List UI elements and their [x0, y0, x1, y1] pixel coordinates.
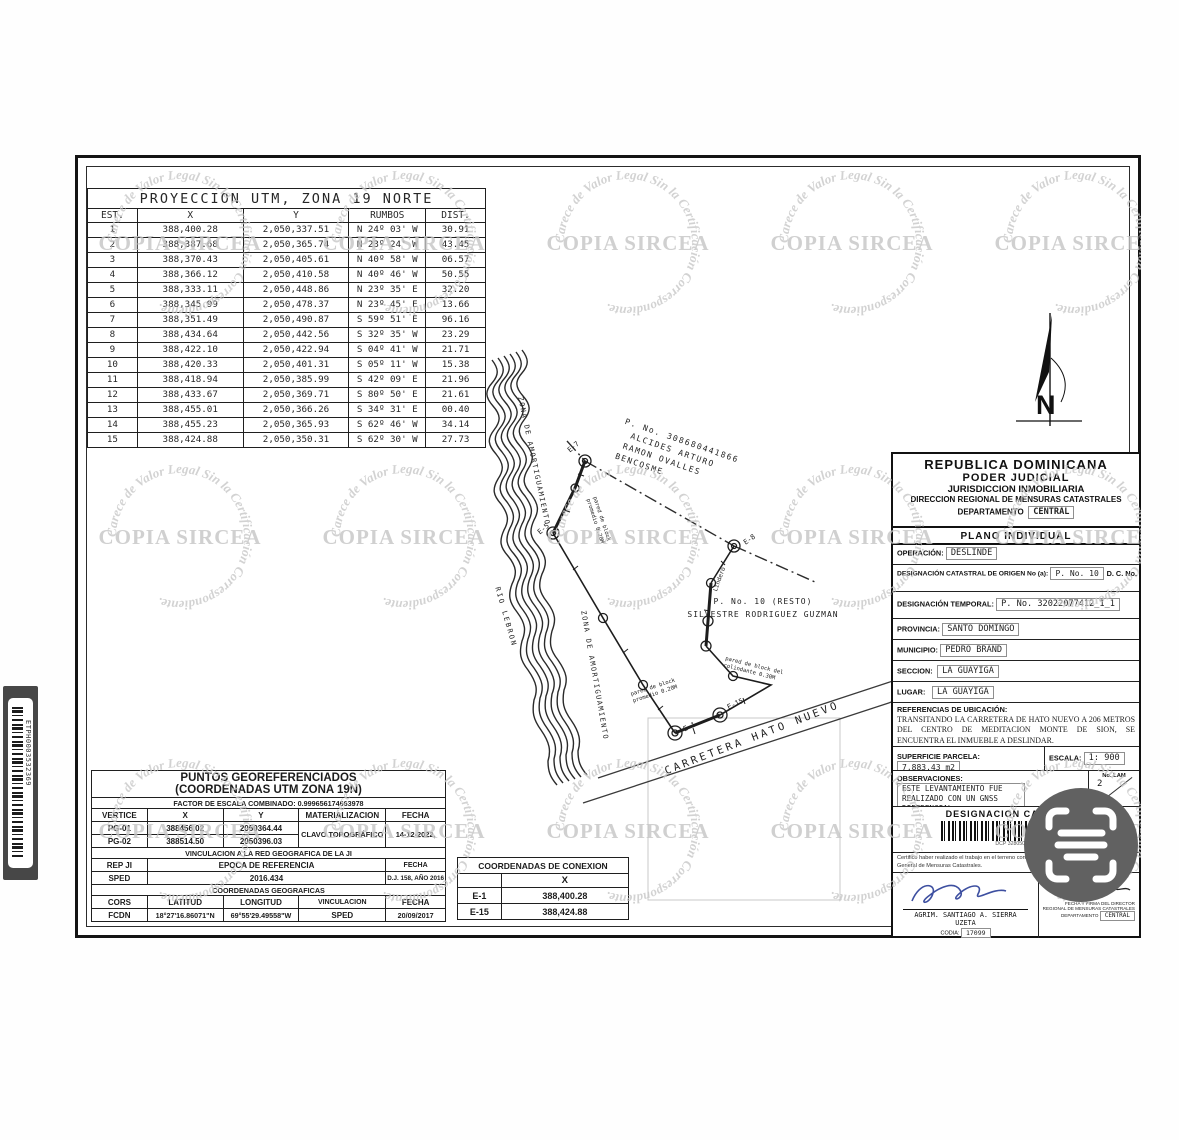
table-row: 15388,424.882,050,350.31S 62º 30' W27.73	[88, 433, 486, 448]
table-cell: 388,422.10	[137, 343, 243, 358]
georef-table: PUNTOS GEOREFERENCIADOS(COORDENADAS UTM …	[91, 770, 446, 922]
field-seccion: SECCION: LA GUAYIGA	[893, 661, 1139, 682]
panel-header: REPUBLICA DOMINICANA PODER JUDICIAL JURI…	[893, 454, 1139, 528]
table-row: 4388,366.122,050,410.58N 40º 46' W50.55	[88, 268, 486, 283]
georef-header: VERTICEX YMATERIALIZACION FECHA	[92, 809, 446, 822]
table-cell: 7	[88, 313, 138, 328]
georef-cors-header: CORSLATITUD LONGITUDVINCULACION FECHA	[92, 896, 446, 909]
georef-geo-title: COORDENADAS GEOGRAFICAS	[92, 885, 446, 896]
table-cell: 388,400.28	[501, 888, 628, 904]
table-cell: 2	[88, 238, 138, 253]
plan-sheet: N P. No. 308680441866 ALCIDES ARTURO RAM…	[75, 155, 1141, 938]
table-cell: N 23º 24' W	[349, 238, 426, 253]
table-cell: 388,387.68	[137, 238, 243, 253]
table-cell: 06.57	[426, 253, 486, 268]
table-cell: 2,050,385.99	[243, 373, 349, 388]
table-row: 6388,345.992,050,478.37N 23º 45' E13.66	[88, 298, 486, 313]
table-cell: 2,050,365.93	[243, 418, 349, 433]
conexion-table: COORDENADAS DE CONEXION X E-1388,400.28E…	[457, 857, 629, 920]
georef-row-pg01: PG-01388456.02 2050364.44 CLAVO TOPOGRÁF…	[92, 822, 446, 835]
table-cell: 5	[88, 283, 138, 298]
table-cell: 23.29	[426, 328, 486, 343]
utm-table: PROYECCION UTM, ZONA 19 NORTE EST.X YRUM…	[87, 188, 486, 448]
conexion-title: COORDENADAS DE CONEXION	[458, 858, 629, 874]
scanned-plan-page: ETPH0003532369	[0, 0, 1179, 1140]
table-cell: 21.96	[426, 373, 486, 388]
conexion-header: X	[458, 874, 629, 888]
table-cell: 388,351.49	[137, 313, 243, 328]
table-cell: N 40º 46' W	[349, 268, 426, 283]
table-cell: S 05º 11' W	[349, 358, 426, 373]
table-cell: 30.91	[426, 223, 486, 238]
field-municipio: MUNICIPIO: PEDRO BRAND	[893, 640, 1139, 661]
table-cell: 4	[88, 268, 138, 283]
table-cell: 2,050,365.74	[243, 238, 349, 253]
table-cell: N 23º 45' E	[349, 298, 426, 313]
georef-cors-row: FCDN 18°27'16.86071"N 69°55'29.49558"W S…	[92, 909, 446, 922]
table-cell: 2,050,401.31	[243, 358, 349, 373]
table-cell: N 23º 35' E	[349, 283, 426, 298]
table-cell: E-15	[458, 904, 502, 920]
north-letter: N	[1036, 390, 1056, 420]
table-cell: 21.71	[426, 343, 486, 358]
table-cell: 388,400.28	[137, 223, 243, 238]
field-superficie-escala: SUPERFICIE PARCELA: 7,883.43 m2 ESCALA: …	[893, 747, 1139, 771]
departamento-value: CENTRAL	[1028, 506, 1074, 519]
table-cell: 3	[88, 253, 138, 268]
georef-vinc-title: VINCULACION A LA RED GEOGRAFICA DE LA JI	[92, 848, 446, 859]
table-cell: 21.61	[426, 388, 486, 403]
table-cell: S 59º 51' E	[349, 313, 426, 328]
table-cell: 13.66	[426, 298, 486, 313]
table-cell: S 32º 35' W	[349, 328, 426, 343]
table-cell: E-1	[458, 888, 502, 904]
utm-table-header: EST.X YRUMBOS DIST.	[88, 209, 486, 223]
table-cell: 388,424.88	[501, 904, 628, 920]
utm-table-body: 1388,400.282,050,337.51N 24º 03' W30.912…	[88, 223, 486, 448]
table-cell: 2,050,405.61	[243, 253, 349, 268]
resto-parcel-label: P. No. 10 (RESTO) SILVESTRE RODRIGUEZ GU…	[678, 596, 848, 622]
table-cell: 50.55	[426, 268, 486, 283]
table-cell: S 62º 46' W	[349, 418, 426, 433]
georef-title: PUNTOS GEOREFERENCIADOS(COORDENADAS UTM …	[92, 771, 446, 798]
table-cell: 1	[88, 223, 138, 238]
surveyor-name: AGRIM. SANTIAGO A. SIERRA UZETA	[903, 909, 1028, 927]
barcode-text: ETPH0003532369	[24, 720, 32, 786]
table-row: 9388,422.102,050,422.94S 04º 41' W21.71	[88, 343, 486, 358]
table-cell: 00.40	[426, 403, 486, 418]
field-provincia: PROVINCIA: SANTO DOMINGO	[893, 619, 1139, 640]
table-cell: 2,050,422.94	[243, 343, 349, 358]
table-cell: 43.45	[426, 238, 486, 253]
table-cell: 388,424.88	[137, 433, 243, 448]
table-cell: S 80º 50' E	[349, 388, 426, 403]
field-temporal: DESIGNACIÓN TEMPORAL: P. No. 32022077412…	[893, 592, 1139, 619]
table-row: 13388,455.012,050,366.26S 34º 31' E00.40	[88, 403, 486, 418]
river-lines	[487, 350, 587, 785]
table-cell: 9	[88, 343, 138, 358]
table-cell: N 40º 58' W	[349, 253, 426, 268]
table-cell: 2,050,350.31	[243, 433, 349, 448]
scan-icon	[1023, 787, 1139, 903]
table-cell: 2,050,490.87	[243, 313, 349, 328]
table-cell: 32.20	[426, 283, 486, 298]
table-cell: 2,050,410.58	[243, 268, 349, 283]
table-cell: 15.38	[426, 358, 486, 373]
table-cell: 34.14	[426, 418, 486, 433]
table-cell: 388,455.01	[137, 403, 243, 418]
scan-fab-button[interactable]	[1023, 787, 1139, 903]
table-cell: 13	[88, 403, 138, 418]
table-row: 11388,418.942,050,385.99S 42º 09' E21.96	[88, 373, 486, 388]
field-referencias: REFERENCIAS DE UBICACIÓN: TRANSITANDO LA…	[893, 703, 1139, 747]
table-cell: 2,050,366.26	[243, 403, 349, 418]
table-cell: 388,420.33	[137, 358, 243, 373]
table-cell: 10	[88, 358, 138, 373]
table-cell: 2,050,478.37	[243, 298, 349, 313]
table-cell: S 04º 41' W	[349, 343, 426, 358]
table-row: 8388,434.642,050,442.56S 32º 35' W23.29	[88, 328, 486, 343]
table-cell: 12	[88, 388, 138, 403]
table-row: 12388,433.672,050,369.71S 80º 50' E21.61	[88, 388, 486, 403]
barcode-icon	[12, 707, 23, 859]
table-cell: 388,455.23	[137, 418, 243, 433]
georef-rep-row: SPED 2016.434 D.J. 158, AÑO 2016	[92, 872, 446, 885]
table-cell: 15	[88, 433, 138, 448]
utm-table-title: PROYECCION UTM, ZONA 19 NORTE	[88, 189, 486, 209]
table-cell: 6	[88, 298, 138, 313]
table-cell: 27.73	[426, 433, 486, 448]
table-row: 5388,333.112,050,448.86N 23º 35' E32.20	[88, 283, 486, 298]
surveyor-signature	[906, 877, 1026, 907]
field-lugar: LUGAR: LA GUAYIGA	[893, 682, 1139, 703]
georef-rep-header: REP JI EPOCA DE REFERENCIA FECHA	[92, 859, 446, 872]
table-cell: 388,333.11	[137, 283, 243, 298]
table-row: 1388,400.282,050,337.51N 24º 03' W30.91	[88, 223, 486, 238]
field-origen: DESIGNACIÓN CATASTRAL DE ORIGEN No (a): …	[893, 565, 1139, 592]
table-cell: 11	[88, 373, 138, 388]
table-cell: 2,050,442.56	[243, 328, 349, 343]
table-row: E-1388,400.28	[458, 888, 629, 904]
table-cell: 388,370.43	[137, 253, 243, 268]
table-cell: N 24º 03' W	[349, 223, 426, 238]
georef-factor: FACTOR DE ESCALA COMBINADO: 0.9996561746…	[92, 798, 446, 809]
north-arrow-icon: N	[1016, 313, 1082, 426]
table-cell: 2,050,369.71	[243, 388, 349, 403]
table-cell: S 62º 30' W	[349, 433, 426, 448]
edge-barcode-strip: ETPH0003532369	[3, 686, 38, 880]
table-cell: 388,433.67	[137, 388, 243, 403]
table-cell: 8	[88, 328, 138, 343]
table-cell: 388,418.94	[137, 373, 243, 388]
table-cell: 2,050,448.86	[243, 283, 349, 298]
table-row: 14388,455.232,050,365.93S 62º 46' W34.14	[88, 418, 486, 433]
table-row: 2388,387.682,050,365.74N 23º 24' W43.45	[88, 238, 486, 253]
table-cell: 96.16	[426, 313, 486, 328]
table-row: 3388,370.432,050,405.61N 40º 58' W06.57	[88, 253, 486, 268]
table-cell: 2,050,337.51	[243, 223, 349, 238]
table-cell: 388,434.64	[137, 328, 243, 343]
barcode-label: ETPH0003532369	[8, 698, 33, 868]
table-cell: 388,345.99	[137, 298, 243, 313]
field-operacion: OPERACIÓN: DESLINDE	[893, 545, 1139, 565]
table-cell: 388,366.12	[137, 268, 243, 283]
table-row: 10388,420.332,050,401.31S 05º 11' W15.38	[88, 358, 486, 373]
table-cell: S 42º 09' E	[349, 373, 426, 388]
table-cell: 14	[88, 418, 138, 433]
table-cell: S 34º 31' E	[349, 403, 426, 418]
plano-individual: PLANO INDIVIDUAL	[893, 528, 1139, 545]
table-row: E-15388,424.88	[458, 904, 629, 920]
conexion-body: E-1388,400.28E-15388,424.88	[458, 888, 629, 920]
table-row: 7388,351.492,050,490.87S 59º 51' E96.16	[88, 313, 486, 328]
